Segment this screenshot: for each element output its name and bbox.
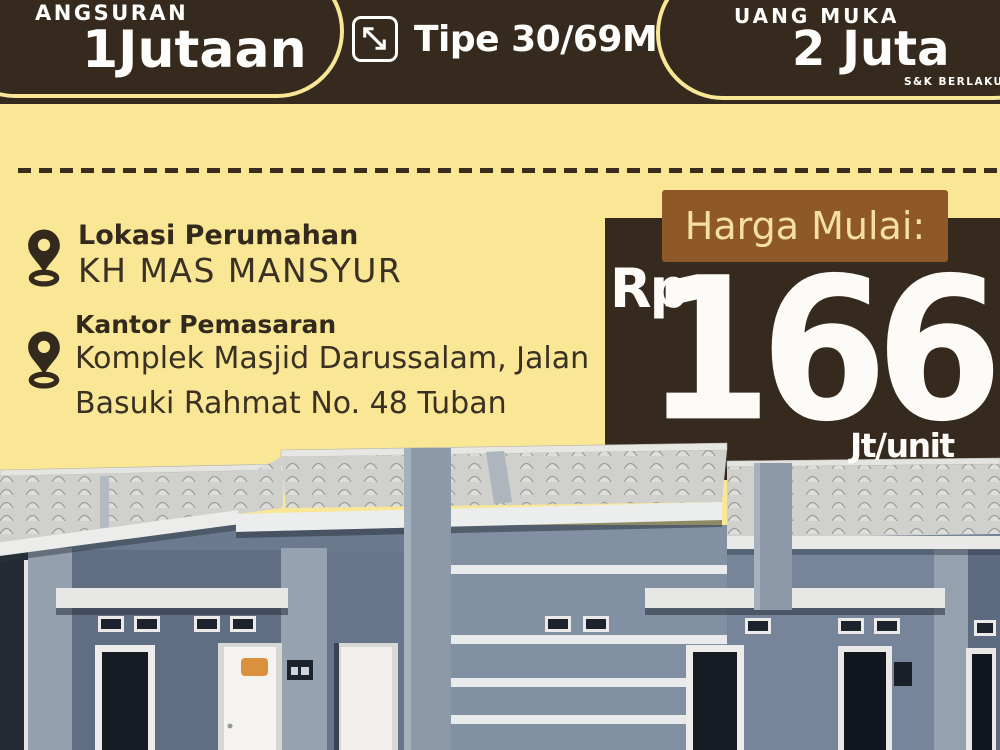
price-amount: 166: [645, 252, 991, 450]
office-address-line2: Basuki Rahmat No. 48 Tuban: [75, 386, 507, 421]
location-name: KH MAS MANSYUR: [78, 251, 402, 290]
terms-note: S&K BERLAKU: [904, 76, 1000, 88]
type-spec-label: Tipe 30/69M²: [414, 19, 673, 60]
installment-badge: ANGSURAN 1Jutaan: [0, 0, 344, 98]
houses-photo: [0, 430, 1000, 750]
price-unit-label: Jt/unit: [850, 426, 954, 465]
office-address-line1: Komplek Masjid Darussalam, Jalan: [75, 341, 589, 376]
map-pin-icon: [25, 329, 63, 389]
arrow-diagonal-icon: [352, 16, 398, 62]
wall-lamp: [894, 662, 912, 686]
down-payment-badge: UANG MUKA 2 Juta S&K BERLAKU: [656, 0, 1000, 100]
house-number-sign: [287, 660, 313, 680]
office-heading: Kantor Pemasaran: [75, 310, 336, 339]
type-spec-group: Tipe 30/69M²: [352, 16, 673, 62]
roof-middle: [236, 443, 727, 538]
dashed-divider: [18, 168, 1000, 173]
map-pin-icon: [25, 227, 63, 287]
installment-badge-main-label: 1Jutaan: [82, 24, 307, 76]
property-flyer: ANGSURAN 1Jutaan Tipe 30/69M² UANG MUKA …: [0, 0, 1000, 750]
location-heading: Lokasi Perumahan: [78, 220, 358, 251]
down-payment-main-label: 2 Juta: [792, 25, 949, 73]
